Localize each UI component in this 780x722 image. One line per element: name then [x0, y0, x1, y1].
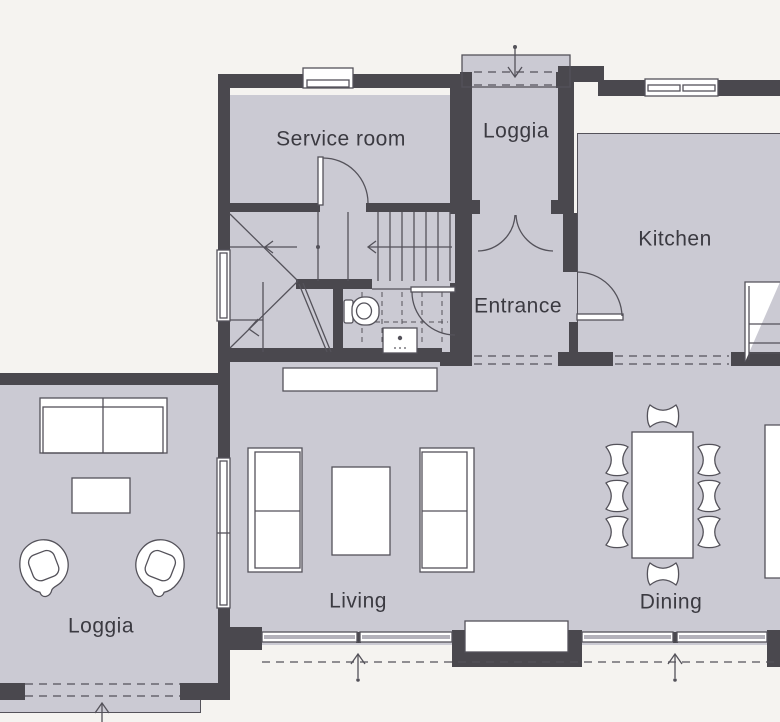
loggia-lower-floor: [0, 385, 218, 700]
wall-wc-right: [450, 283, 472, 353]
room-label-entrance: Entrance: [474, 296, 562, 317]
wall-service-top: [218, 74, 462, 88]
room-label-kitchen: Kitchen: [638, 229, 712, 250]
room-label-dining: Dining: [640, 592, 703, 613]
wall-service-bottom-left: [218, 203, 320, 212]
wall-stair-right: [455, 212, 472, 283]
entry-arrow-dining-icon: [668, 654, 682, 682]
wall-pier-2: [558, 352, 613, 366]
entry-arrow-living-icon: [351, 654, 365, 682]
wall-pier-1: [440, 352, 472, 366]
room-label-loggia-lower: Loggia: [68, 616, 134, 637]
wall-left-exterior: [218, 74, 230, 362]
entrance-floor: [472, 213, 577, 366]
room-label-living: Living: [329, 591, 387, 612]
wall-service-right: [450, 74, 472, 214]
wall-loggia-upper-jamb-left: [460, 72, 472, 88]
wall-kitchen-top: [598, 80, 780, 96]
wall-loggia-foot-left: [0, 683, 25, 700]
wall-kitchen-door-stub: [569, 322, 578, 354]
wall-stair-bottom: [218, 348, 442, 362]
wall-entrance-kitchen: [563, 213, 577, 272]
wall-window-mullion-2: [673, 632, 678, 643]
loggia-step-skirt: [0, 698, 201, 713]
wall-service-bottom-right: [366, 203, 462, 212]
wall-living-loggia: [218, 362, 230, 684]
floor-plan: Service room Loggia Kitchen Entrance Liv…: [0, 0, 780, 722]
wall-loggia-upper-right: [558, 74, 574, 214]
wall-wc-left: [333, 289, 343, 353]
wall-stair-partition: [296, 279, 372, 289]
room-label-loggia-upper: Loggia: [483, 121, 549, 142]
wall-loggia-door-jamb-left: [466, 200, 480, 214]
wall-loggia-upper-jamb-right: [556, 72, 570, 88]
wall-living-bottom-corner: [230, 627, 262, 650]
wall-loggia-foot-right: [180, 683, 230, 700]
wall-window-mullion-1: [356, 632, 361, 643]
wall-pier-3: [731, 352, 780, 366]
room-label-service-room: Service room: [276, 129, 406, 150]
wall-bottom-right-pier: [767, 630, 780, 667]
wall-loggia-lower-top: [0, 373, 218, 385]
wall-chimney: [452, 630, 582, 667]
